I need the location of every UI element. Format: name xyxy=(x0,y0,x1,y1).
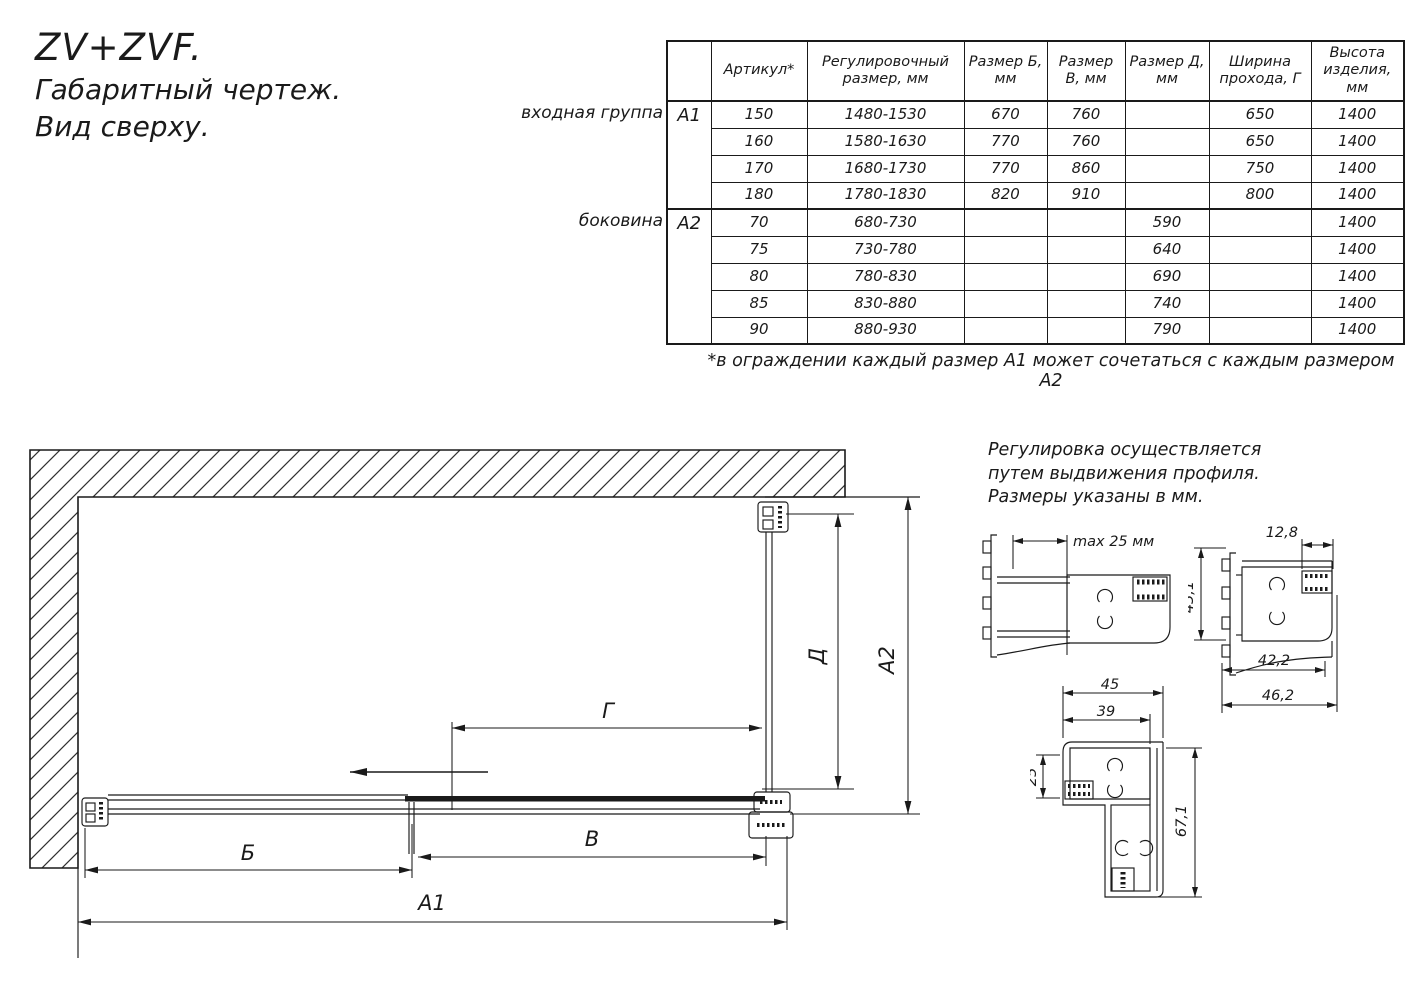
dimension-v: В xyxy=(418,827,766,866)
spec-table: Артикул* Регулировочный размер, мм Разме… xyxy=(666,40,1405,345)
dim-label-46-2: 46,2 xyxy=(1262,688,1294,704)
table-cell: 160 xyxy=(711,128,807,155)
clip-icon xyxy=(1098,589,1113,602)
col-header: Артикул* xyxy=(711,41,807,101)
table-cell: 650 xyxy=(1209,101,1311,128)
table-cell: 750 xyxy=(1209,155,1311,182)
table-cell: 1400 xyxy=(1311,290,1404,317)
table-cell: 860 xyxy=(1047,155,1125,182)
table-row: 90880-9307901400 xyxy=(667,317,1404,344)
col-header: Размер Б, мм xyxy=(964,41,1047,101)
side-panel xyxy=(749,502,793,838)
col-header: Высота изделия, мм xyxy=(1311,41,1404,101)
table-cell: 1480-1530 xyxy=(807,101,964,128)
table-cell: 1780-1830 xyxy=(807,182,964,209)
clip-icon xyxy=(1108,785,1123,798)
table-cell xyxy=(1209,209,1311,236)
clip-icon xyxy=(1140,841,1153,856)
table-cell: 70 xyxy=(711,209,807,236)
plan-drawing: Г Д А2 Б В А1 xyxy=(20,430,940,970)
table-cell xyxy=(964,290,1047,317)
table-cell: 910 xyxy=(1047,182,1125,209)
view-label: Вид сверху. xyxy=(35,110,341,143)
table-cell: 880-930 xyxy=(807,317,964,344)
table-cell xyxy=(1125,155,1209,182)
dim-label-d: Д xyxy=(805,648,829,665)
table-cell: 640 xyxy=(1125,236,1209,263)
table-cell: 760 xyxy=(1047,101,1125,128)
drawing-type: Габаритный чертеж. xyxy=(35,73,341,106)
group-code: А2 xyxy=(667,209,711,344)
clip-icon xyxy=(1108,758,1123,771)
dim-label-42-2: 42,2 xyxy=(1258,653,1290,669)
table-cell xyxy=(1047,317,1125,344)
dim-label-43-1: 43,1 xyxy=(1188,581,1197,613)
sliding-door-glass xyxy=(405,796,765,802)
table-cell: 180 xyxy=(711,182,807,209)
table-cell: 680-730 xyxy=(807,209,964,236)
note-line: путем выдвижения профиля. xyxy=(988,463,1261,487)
dimension-67-1: 67,1 xyxy=(1140,748,1202,897)
table-cell: 670 xyxy=(964,101,1047,128)
table-cell: 75 xyxy=(711,236,807,263)
spec-table-header: Артикул* Регулировочный размер, мм Разме… xyxy=(667,41,1404,101)
dimension-25: 25 xyxy=(1030,755,1060,798)
title-block: ZV+ZVF. Габаритный чертеж. Вид сверху. xyxy=(35,26,341,143)
table-cell: 590 xyxy=(1125,209,1209,236)
dimension-a1: А1 xyxy=(78,836,787,930)
table-cell: 1400 xyxy=(1311,128,1404,155)
clip-icon xyxy=(1098,616,1113,629)
col-header: Размер В, мм xyxy=(1047,41,1125,101)
group-label-entrance: входная группа xyxy=(505,103,663,123)
table-row: 80780-8306901400 xyxy=(667,263,1404,290)
table-cell: 780-830 xyxy=(807,263,964,290)
table-cell xyxy=(1047,263,1125,290)
dimension-g: Г xyxy=(452,699,762,810)
clip-icon xyxy=(1270,612,1285,625)
table-row: А270680-7305901400 xyxy=(667,209,1404,236)
profile-outline xyxy=(1063,742,1163,897)
table-row: 1601580-16307707606501400 xyxy=(667,128,1404,155)
table-cell xyxy=(1047,209,1125,236)
table-cell xyxy=(964,209,1047,236)
table-cell xyxy=(964,317,1047,344)
table-cell: 1400 xyxy=(1311,209,1404,236)
dim-label-a2: А2 xyxy=(875,646,899,676)
table-cell: 770 xyxy=(964,128,1047,155)
drawing-sheet: ZV+ZVF. Габаритный чертеж. Вид сверху. А… xyxy=(0,0,1415,1000)
table-cell: 170 xyxy=(711,155,807,182)
table-cell xyxy=(1209,317,1311,344)
table-cell xyxy=(1047,290,1125,317)
dim-label-g: Г xyxy=(602,699,616,723)
table-row: 75730-7806401400 xyxy=(667,236,1404,263)
col-header: Размер Д, мм xyxy=(1125,41,1209,101)
group-code: А1 xyxy=(667,101,711,209)
dimension-b: Б xyxy=(85,824,412,878)
profile-detail-side: 12,8 43,1 42,2 46,2 xyxy=(1188,515,1405,720)
dim-label-b: Б xyxy=(241,841,255,865)
table-footnote: *в ограждении каждый размер А1 может соч… xyxy=(695,351,1407,391)
table-cell xyxy=(964,263,1047,290)
dimension-39: 39 xyxy=(1063,704,1150,744)
table-cell xyxy=(1125,128,1209,155)
dim-label-45: 45 xyxy=(1101,678,1119,693)
group-label-side: боковина xyxy=(505,211,663,231)
table-cell xyxy=(1125,101,1209,128)
dim-label-max25: max 25 мм xyxy=(1073,534,1154,550)
table-cell: 820 xyxy=(964,182,1047,209)
table-cell: 1400 xyxy=(1311,155,1404,182)
col-header: Регулировочный размер, мм xyxy=(807,41,964,101)
adjustment-note: Регулировка осуществляется путем выдвиже… xyxy=(988,439,1261,510)
dim-label-v: В xyxy=(585,827,599,851)
corner-cell xyxy=(667,41,711,101)
profile-detail-corner: 45 39 25 67,1 xyxy=(1030,678,1210,913)
table-cell: 1400 xyxy=(1311,182,1404,209)
dim-label-25: 25 xyxy=(1030,768,1040,786)
table-row: А11501480-15306707606501400 xyxy=(667,101,1404,128)
table-cell: 790 xyxy=(1125,317,1209,344)
table-row: 1701680-17307708607501400 xyxy=(667,155,1404,182)
table-cell: 1400 xyxy=(1311,317,1404,344)
dim-label-39: 39 xyxy=(1097,704,1115,720)
table-cell: 80 xyxy=(711,263,807,290)
table-cell xyxy=(964,236,1047,263)
table-cell: 1680-1730 xyxy=(807,155,964,182)
table-cell: 830-880 xyxy=(807,290,964,317)
dimension-12-8: 12,8 xyxy=(1266,525,1333,569)
table-cell: 730-780 xyxy=(807,236,964,263)
table-cell: 800 xyxy=(1209,182,1311,209)
table-cell xyxy=(1125,182,1209,209)
table-cell: 150 xyxy=(711,101,807,128)
door-assembly xyxy=(82,772,765,854)
col-header: Ширина прохода, Г xyxy=(1209,41,1311,101)
dim-label-a1: А1 xyxy=(416,891,446,915)
note-line: Регулировка осуществляется xyxy=(988,439,1261,463)
spec-table-body: А11501480-153067076065014001601580-16307… xyxy=(667,101,1404,344)
table-cell: 1400 xyxy=(1311,236,1404,263)
clip-icon xyxy=(1115,841,1128,856)
profile-outline xyxy=(983,535,1170,657)
table-row: 1801780-18308209108001400 xyxy=(667,182,1404,209)
dimension-d: Д xyxy=(762,514,854,789)
table-cell: 1400 xyxy=(1311,263,1404,290)
table-cell: 1400 xyxy=(1311,101,1404,128)
dim-label-67-1: 67,1 xyxy=(1174,805,1190,837)
table-cell: 85 xyxy=(711,290,807,317)
table-cell: 1580-1630 xyxy=(807,128,964,155)
clip-icon xyxy=(1270,577,1285,590)
profile-detail-wall: max 25 мм xyxy=(975,505,1190,673)
product-title: ZV+ZVF. xyxy=(35,26,341,69)
table-cell xyxy=(1209,263,1311,290)
table-cell: 650 xyxy=(1209,128,1311,155)
table-cell: 90 xyxy=(711,317,807,344)
dim-label-12-8: 12,8 xyxy=(1266,525,1298,541)
table-cell xyxy=(1047,236,1125,263)
table-cell: 690 xyxy=(1125,263,1209,290)
table-cell xyxy=(1209,236,1311,263)
dimension-42-2: 42,2 xyxy=(1222,653,1325,713)
table-cell: 740 xyxy=(1125,290,1209,317)
dimension-43-1: 43,1 xyxy=(1188,548,1226,640)
table-cell xyxy=(1209,290,1311,317)
table-cell: 760 xyxy=(1047,128,1125,155)
table-row: 85830-8807401400 xyxy=(667,290,1404,317)
table-cell: 770 xyxy=(964,155,1047,182)
